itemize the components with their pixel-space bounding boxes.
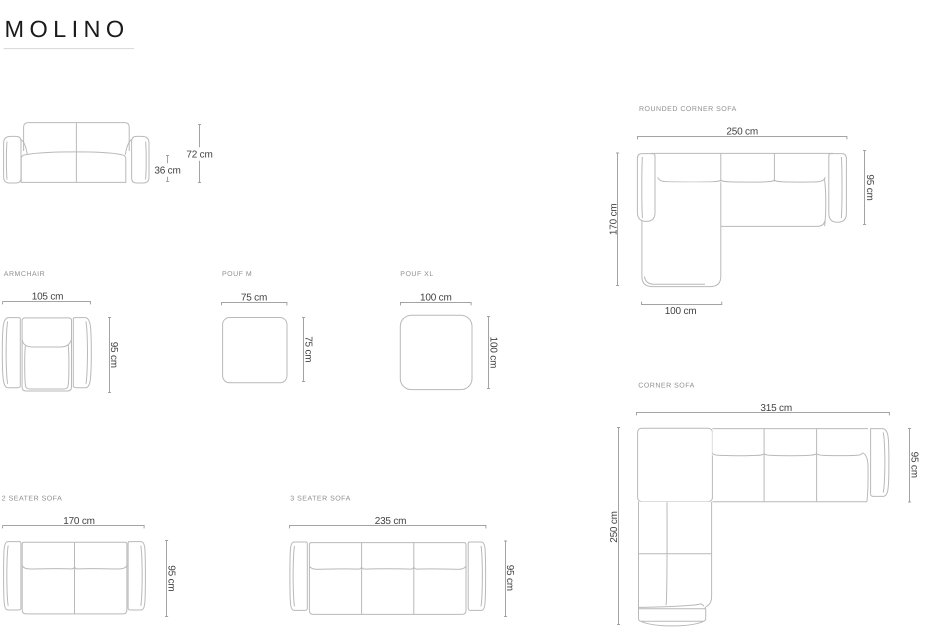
svg-text:250 cm: 250 cm — [609, 511, 620, 543]
svg-text:ARMCHAIR: ARMCHAIR — [4, 271, 45, 278]
svg-text:75 cm: 75 cm — [302, 336, 313, 362]
svg-text:100 cm: 100 cm — [420, 292, 452, 303]
svg-text:72 cm: 72 cm — [186, 150, 212, 161]
svg-text:3 SEATER SOFA: 3 SEATER SOFA — [290, 496, 350, 503]
svg-text:95 cm: 95 cm — [108, 342, 119, 368]
svg-text:POUF M: POUF M — [222, 271, 252, 278]
svg-text:POUF XL: POUF XL — [400, 271, 433, 278]
svg-text:315 cm: 315 cm — [760, 403, 792, 414]
svg-text:95 cm: 95 cm — [504, 565, 515, 591]
svg-text:235 cm: 235 cm — [375, 516, 407, 527]
svg-text:100 cm: 100 cm — [488, 337, 499, 369]
svg-text:MOLINO: MOLINO — [5, 16, 130, 42]
svg-text:CORNER SOFA: CORNER SOFA — [638, 383, 694, 390]
svg-text:95 cm: 95 cm — [166, 565, 177, 591]
svg-text:95 cm: 95 cm — [909, 452, 920, 478]
svg-text:ROUNDED CORNER SOFA: ROUNDED CORNER SOFA — [639, 106, 737, 113]
svg-text:75 cm: 75 cm — [241, 292, 267, 303]
svg-text:95 cm: 95 cm — [864, 174, 875, 200]
svg-text:105 cm: 105 cm — [32, 291, 64, 302]
svg-text:170 cm: 170 cm — [608, 204, 619, 236]
svg-text:100 cm: 100 cm — [665, 306, 697, 317]
svg-text:2 SEATER SOFA: 2 SEATER SOFA — [2, 496, 62, 503]
svg-text:170 cm: 170 cm — [63, 516, 95, 527]
svg-text:250 cm: 250 cm — [726, 126, 758, 137]
svg-text:36 cm: 36 cm — [154, 166, 180, 177]
